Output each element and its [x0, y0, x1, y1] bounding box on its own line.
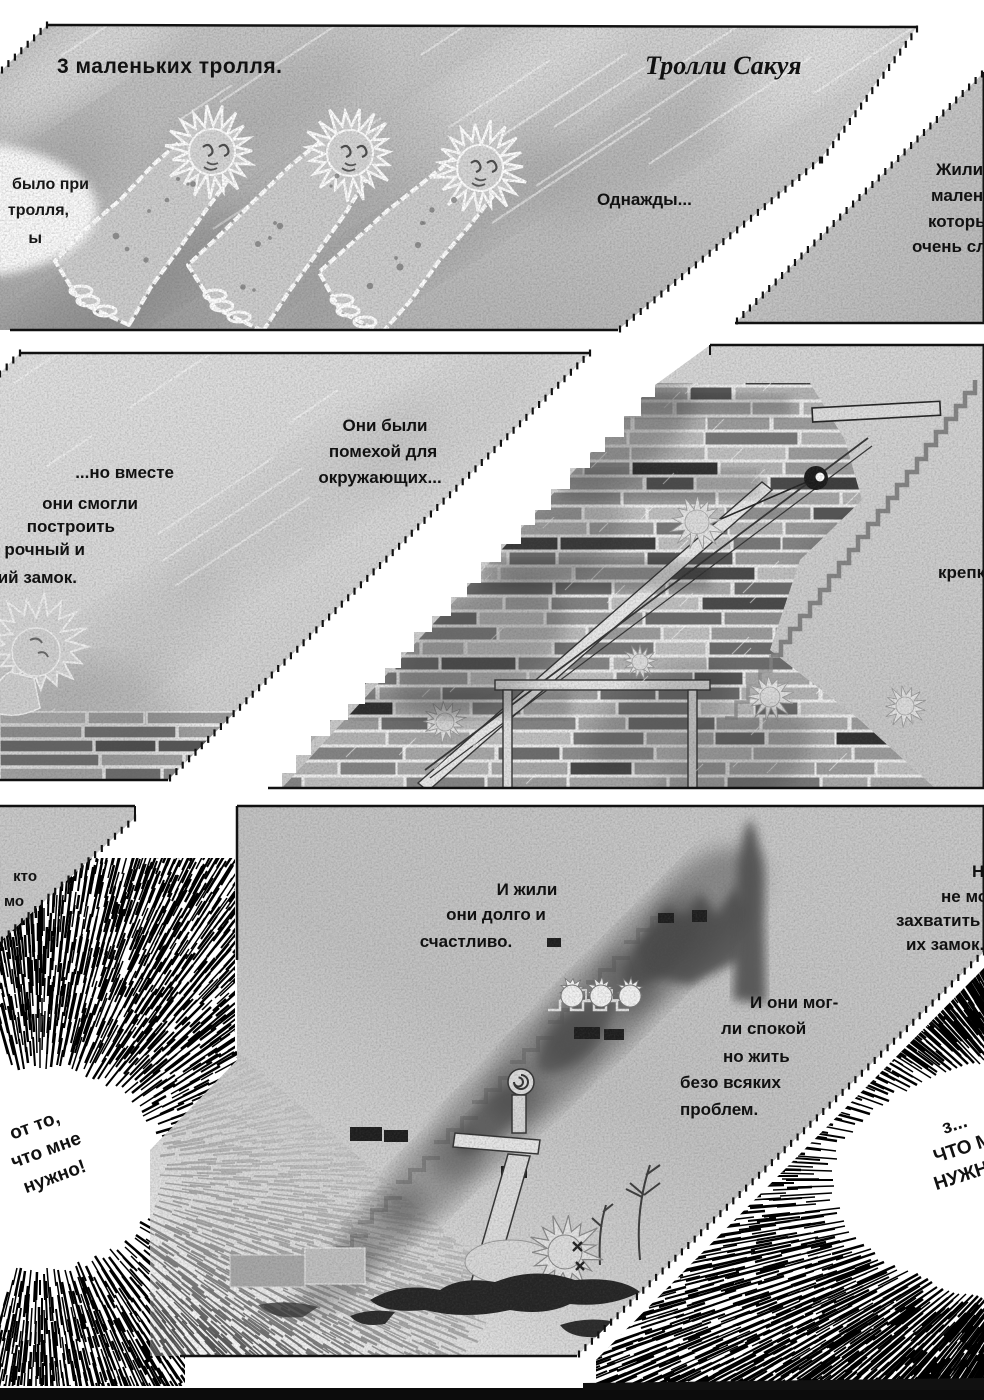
- svg-text:И они мог-: И они мог-: [750, 993, 838, 1012]
- svg-text:не мог: не мог: [941, 887, 984, 906]
- svg-text:И жили: И жили: [497, 880, 558, 899]
- svg-text:очень слабым: очень слабым: [912, 237, 984, 256]
- svg-text:кто: кто: [13, 868, 37, 885]
- svg-text:маленьки: маленьки: [931, 186, 984, 205]
- svg-text:окружающих...: окружающих...: [318, 468, 441, 487]
- svg-text:безо всяких: безо всяких: [680, 1073, 781, 1092]
- svg-text:которые бы: которые бы: [928, 212, 984, 231]
- svg-text:построить: построить: [27, 517, 115, 536]
- svg-text:они смогли: они смогли: [42, 494, 138, 513]
- svg-text:Никто: Никто: [972, 862, 984, 881]
- svg-text:Однажды...: Однажды...: [597, 190, 692, 209]
- svg-text:...но вместе: ...но вместе: [75, 463, 174, 482]
- svg-text:ли спокой: ли спокой: [721, 1019, 806, 1038]
- svg-text:рочный и: рочный и: [4, 540, 85, 559]
- svg-text:счастливо.: счастливо.: [420, 932, 512, 951]
- svg-text:их замок.: их замок.: [906, 935, 984, 954]
- svg-text:но жить: но жить: [723, 1047, 790, 1066]
- svg-text:захватить: захватить: [896, 911, 980, 930]
- svg-text:они долго и: они долго и: [446, 905, 546, 924]
- svg-text:3 маленьких тролля.: 3 маленьких тролля.: [57, 55, 282, 78]
- svg-text:помехой для: помехой для: [329, 442, 437, 461]
- svg-text:Они были: Они были: [343, 416, 428, 435]
- svg-text:Тролли Сакуя: Тролли Сакуя: [645, 51, 801, 80]
- svg-text:проблем.: проблем.: [680, 1100, 758, 1119]
- svg-text:ий замок.: ий замок.: [0, 568, 77, 587]
- svg-text:Жили б: Жили б: [935, 160, 984, 179]
- svg-text:мо: мо: [4, 893, 24, 910]
- svg-text:крепк: крепк: [938, 563, 984, 582]
